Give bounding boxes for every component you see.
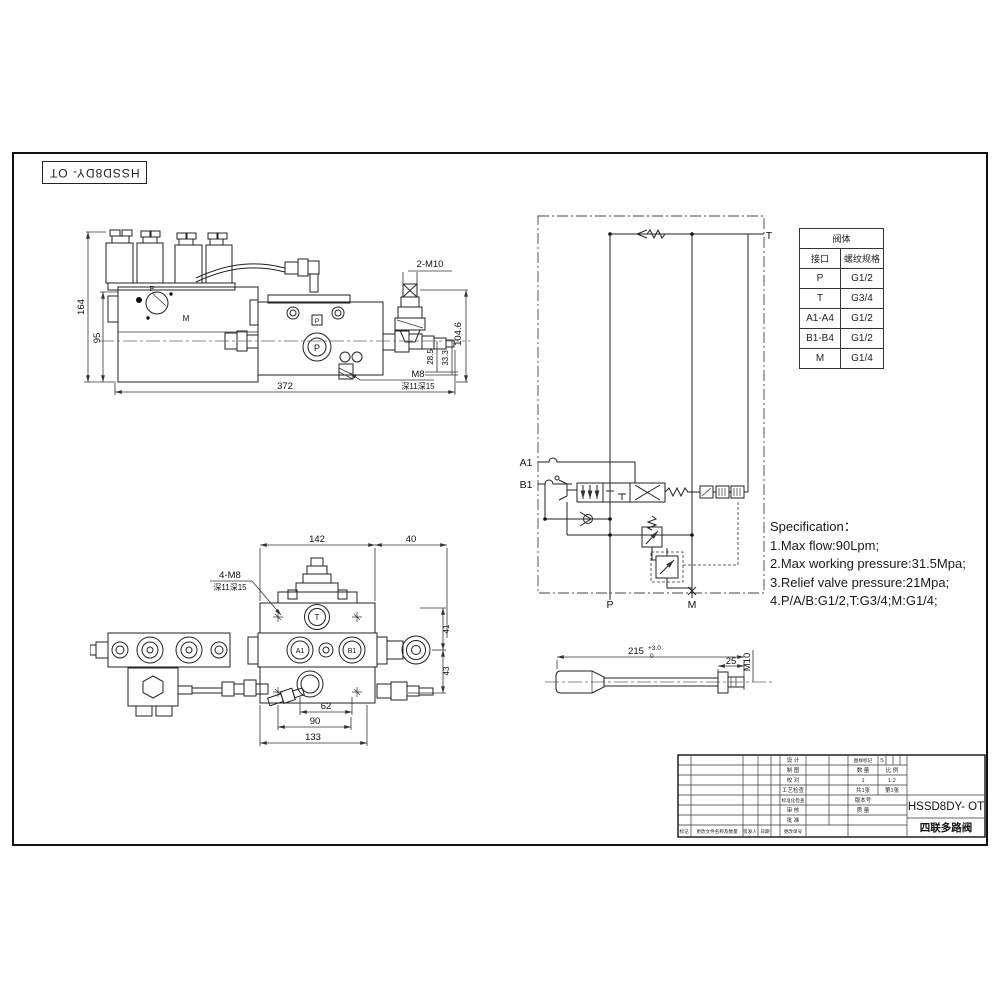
left-manifold (90, 633, 230, 667)
schematic-lines (538, 230, 764, 600)
table-row: B1-B4 G1/2 (800, 329, 884, 349)
dim-m8: M8 (411, 369, 424, 380)
port-cell: P (800, 269, 841, 289)
plugged-port-symbol (688, 584, 696, 598)
model-code: HSSD8DY- OT (908, 801, 984, 813)
dim-215: 215 (628, 646, 644, 657)
dim-40: 40 (406, 535, 417, 545)
dim-372: 372 (277, 381, 293, 392)
thread-cell: G1/2 (841, 309, 884, 329)
title-block-left-labels: 设 计 制 图 校 对 工艺检查 标准化检查 审 核 批 准 标记 更改文件名称… (679, 756, 804, 835)
dim-25: 25 (726, 656, 737, 667)
dim-28-5: 28.5 (426, 349, 435, 365)
spec-line-1: 1.Max flow:90Lpm; (770, 537, 988, 556)
port-label-p-center: P (314, 343, 320, 353)
schematic-port-b1: B1 (520, 479, 533, 491)
schematic-port-t: T (766, 230, 773, 242)
label-drawing-mark: 图样标记 (854, 757, 873, 764)
spec-title: Specification： (770, 518, 988, 537)
specification-block: Specification： 1.Max flow:90Lpm; 2.Max w… (770, 518, 988, 611)
port-label-b1: B1 (348, 648, 357, 655)
schematic-port-a1: A1 (520, 457, 533, 469)
rotated-doc-code-box: HSSD8DY- OT (42, 161, 147, 184)
top-relief-stack (278, 558, 357, 603)
spec-line-2: 2.Max working pressure:31.5Mpa; (770, 555, 988, 574)
thread-cell: G1/2 (841, 329, 884, 349)
dimensions: 215 +3.0 0 25 M10 (557, 645, 753, 690)
label-date: 日期 (760, 829, 770, 835)
drawing-sheet: HSSD8DY- OT (0, 0, 1000, 1000)
thread-cell: G3/4 (841, 289, 884, 309)
label-design: 设 计 (787, 756, 800, 764)
thread-cell: G1/4 (841, 349, 884, 369)
table-row: M G1/4 (800, 349, 884, 369)
port-cell: B1-B4 (800, 329, 841, 349)
port-label-a1: A1 (296, 648, 305, 655)
dim-depth-note: 深11深15 (401, 382, 435, 391)
directional-valve-symbol (555, 476, 748, 502)
schematic-port-p: P (606, 599, 613, 611)
front-view-drawing: 142 40 4-M8 深11深15 41 43 62 90 133 T A1 … (90, 535, 470, 760)
port-cell: A1-A4 (800, 309, 841, 329)
dim-133: 133 (305, 732, 321, 743)
dim-164: 164 (76, 299, 87, 315)
port-table-col-thread: 螺纹规格 (841, 249, 884, 269)
lower-body (260, 667, 433, 703)
label-mass: 质 量 (857, 806, 870, 814)
value-qty: 1 (861, 778, 864, 784)
dim-33-3: 33.3 (441, 350, 450, 366)
pilot-pressure-valve-symbol (651, 500, 738, 588)
middle-port-band (248, 633, 387, 667)
product-name: 四联多路阀 (920, 821, 973, 834)
dimensions: 164 95 372 104.6 28.5 33.3 2-M10 M8 深11深… (76, 232, 468, 395)
dim-104-6: 104.6 (453, 322, 464, 346)
dim-90: 90 (310, 716, 321, 727)
table-row: A1-A4 G1/2 (800, 309, 884, 329)
label-version: 版本号 (855, 796, 872, 804)
spec-line-4: 4.P/A/B:G1/2,T:G3/4;M:G1/4; (770, 592, 988, 611)
dim-215-tol-lower: 0 (650, 653, 654, 660)
left-valve-block (108, 287, 258, 382)
value-scale: 1:2 (888, 778, 896, 784)
value-drawing-mark: S (880, 758, 884, 764)
relief-valve-assembly (383, 284, 454, 352)
label-mark: 标记 (679, 828, 689, 835)
port-thread-table: 阀体 接口 螺纹规格 P G1/2 T G3/4 A1-A4 G1/2 B1-B… (799, 228, 884, 369)
title-block-right-fields: 图样标记 S 数 量 比 例 1 1:2 共1张 第1张 版本号 质 量 HSS… (854, 757, 984, 834)
dim-depth-note: 深11深15 (213, 583, 247, 592)
label-review: 审 核 (787, 806, 800, 814)
dim-95: 95 (92, 333, 103, 344)
label-scale: 比 例 (886, 766, 899, 774)
label-approve: 批 准 (787, 816, 800, 824)
solenoid-stack (106, 230, 235, 290)
hydraulic-schematic: T A1 B1 P M (505, 205, 780, 615)
handle-drawing: 215 +3.0 0 25 M10 (530, 630, 780, 710)
port-cell: M (800, 349, 841, 369)
label-signer: 签发人 (743, 828, 757, 835)
dim-215-tol-upper: +3.0 (648, 645, 661, 652)
dim-m10: M10 (742, 653, 753, 671)
port-cell: T (800, 289, 841, 309)
label-standard-check: 标准化检查 (782, 797, 805, 804)
value-sheet-no: 第1张 (885, 786, 900, 794)
port-label-p-small: P (315, 318, 319, 325)
schematic-port-m: M (688, 599, 697, 611)
dim-41: 41 (442, 624, 451, 633)
port-label-t: T (315, 613, 320, 622)
dim-142: 142 (309, 535, 325, 545)
spec-line-3: 3.Relief valve pressure:21Mpa; (770, 574, 988, 593)
dim-2-m10: 2-M10 (417, 259, 444, 270)
dim-4-m8: 4-M8 (219, 570, 241, 581)
title-block: 设 计 制 图 校 对 工艺检查 标准化检查 审 核 批 准 标记 更改文件名称… (675, 750, 990, 845)
port-table-col-interface: 接口 (800, 249, 841, 269)
label-qty: 数 量 (857, 766, 870, 774)
label-change-order: 更改单号 (784, 828, 803, 835)
main-valve-body (225, 295, 383, 379)
label-change-doc: 更改文件名称及数量 (696, 828, 738, 835)
port-table-title: 阀体 (800, 229, 884, 249)
table-row: T G3/4 (800, 289, 884, 309)
value-sheet-total: 共1张 (856, 786, 871, 794)
right-fitting (387, 636, 430, 664)
port-label-m: M (183, 314, 190, 323)
label-draw: 制 图 (787, 766, 800, 774)
rotated-doc-code: HSSD8DY- OT (49, 166, 140, 180)
schematic-boundary (538, 216, 764, 593)
port-label-p-top: P (150, 286, 155, 293)
dim-62: 62 (321, 701, 332, 712)
thread-cell: G1/2 (841, 269, 884, 289)
table-row: P G1/2 (800, 269, 884, 289)
label-process-check: 工艺检查 (782, 786, 805, 794)
relief-valve-symbol (642, 516, 662, 560)
side-view-drawing: 164 95 372 104.6 28.5 33.3 2-M10 M8 深11深… (60, 225, 480, 400)
label-check: 校 对 (787, 776, 800, 784)
dim-43: 43 (442, 666, 451, 675)
